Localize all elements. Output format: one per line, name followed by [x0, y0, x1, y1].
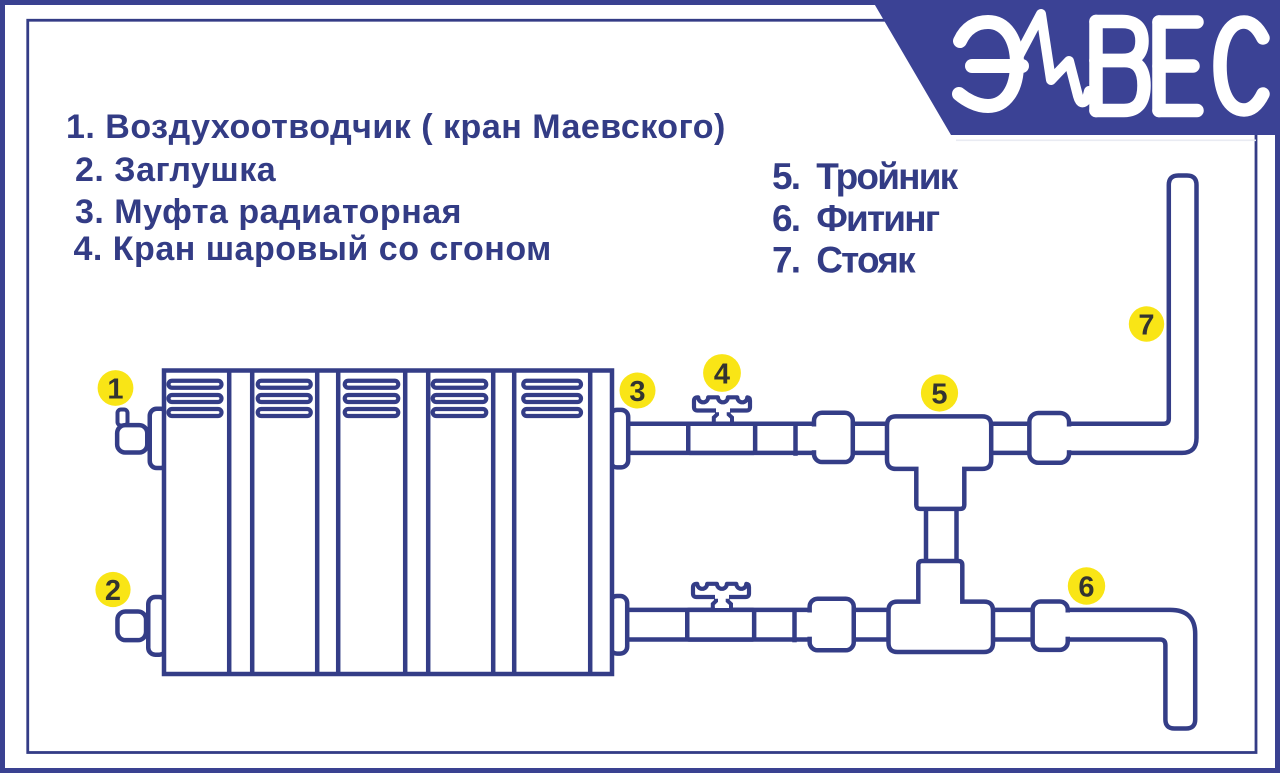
svg-text:3. Муфта радиаторная: 3. Муфта радиаторная [75, 193, 462, 231]
svg-text:6: 6 [1078, 572, 1094, 604]
svg-text:4. Кран шаровый со сгоном: 4. Кран шаровый со сгоном [74, 230, 552, 268]
svg-text:1: 1 [107, 374, 123, 406]
svg-text:3: 3 [629, 376, 645, 408]
svg-text:7: 7 [1138, 310, 1154, 342]
svg-text:5: 5 [931, 379, 947, 411]
svg-text:4: 4 [714, 359, 730, 391]
svg-text:7. Стояк: 7. Стояк [772, 240, 916, 281]
svg-text:5. Тройник: 5. Тройник [772, 156, 959, 197]
svg-text:2. Заглушка: 2. Заглушка [75, 151, 277, 189]
svg-text:1. Воздухоотводчик ( кран Маев: 1. Воздухоотводчик ( кран Маевского) [66, 108, 726, 146]
svg-text:2: 2 [105, 575, 121, 607]
svg-text:6. Фитинг: 6. Фитинг [772, 198, 940, 239]
